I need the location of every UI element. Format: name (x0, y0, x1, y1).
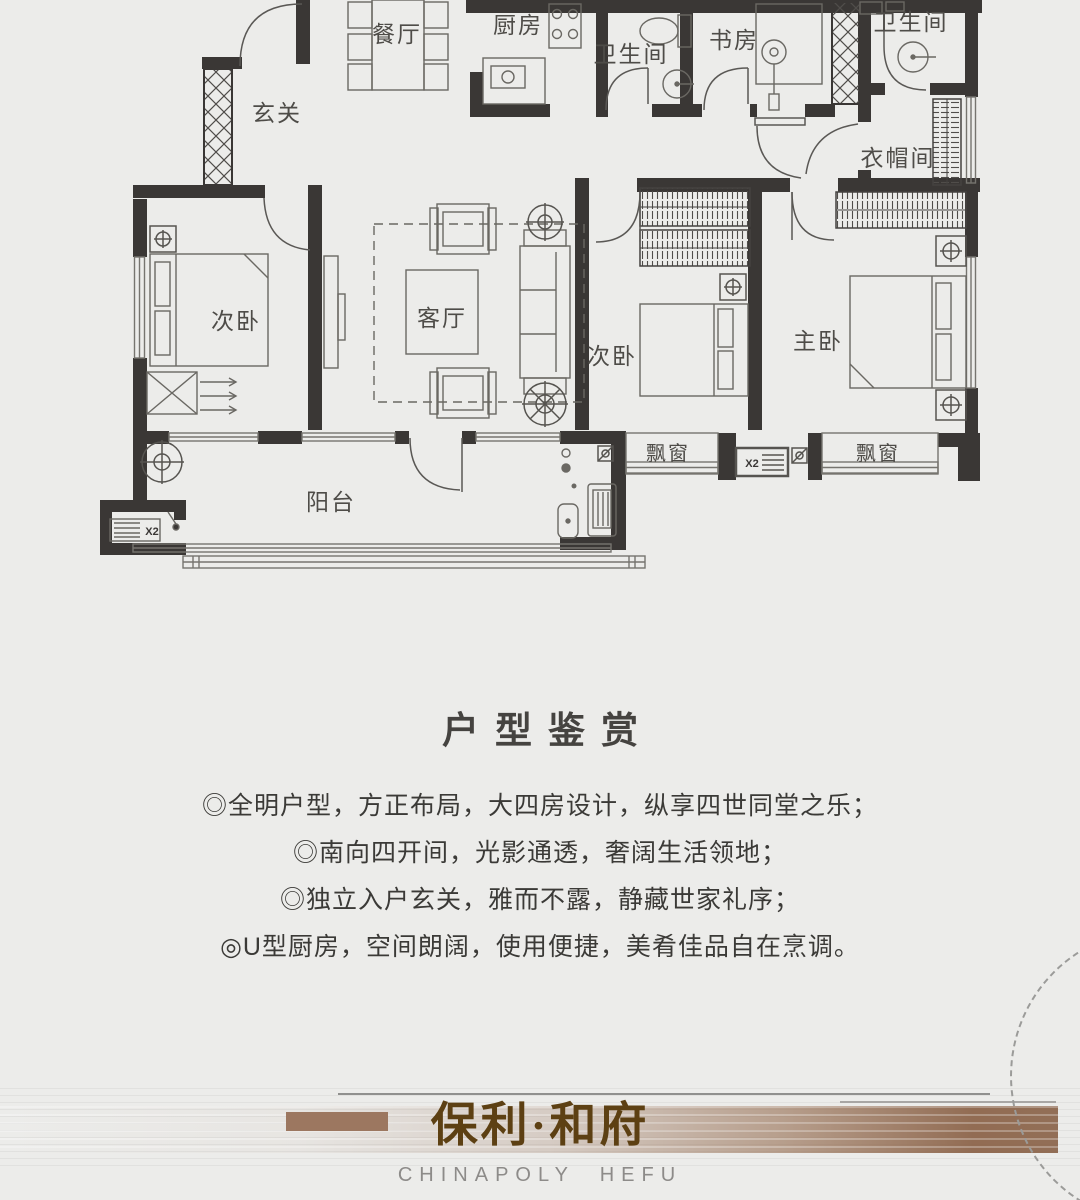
bed-middle-icon (640, 304, 748, 396)
room-label-bedroom-middle: 次卧 (587, 343, 637, 369)
room-label-cloakroom: 衣帽间 (861, 145, 936, 171)
meter-box-icon-4 (936, 390, 966, 420)
floorplan: 餐厅 厨房 卫生间 书房 卫生间 衣帽间 玄关 次卧 客厅 次卧 主卧 飘窗 飘… (0, 0, 1080, 600)
meter-box-icon (150, 226, 176, 252)
room-label-bath-right: 卫生间 (874, 9, 949, 35)
tv-console-icon (324, 256, 338, 368)
room-label-foyer: 玄关 (252, 100, 302, 126)
cloakroom-door-arc (806, 124, 858, 174)
study-door-arc (704, 68, 748, 110)
feature-bullet-4: ◎U型厨房，空间朗阔，使用便捷，美肴佳品自在烹调。 (0, 927, 1080, 963)
feature-bullet-3: ◎独立入户玄关，雅而不露，静藏世家礼序； (0, 880, 1080, 916)
room-label-living: 客厅 (417, 305, 467, 331)
bedroom-left-door-arc (264, 198, 310, 250)
bedroom-mid-door-arc (596, 192, 640, 242)
balcony-door-arc (410, 438, 460, 490)
bath-top-door-arc (606, 68, 648, 110)
vent-icon-2 (792, 448, 807, 463)
page: 餐厅 厨房 卫生间 书房 卫生间 衣帽间 玄关 次卧 客厅 次卧 主卧 飘窗 飘… (0, 0, 1080, 1200)
brand-subtitle: CHINAPOLY HEFU (0, 1164, 1080, 1187)
desk-icon (756, 4, 822, 110)
meter-box-icon-3 (936, 236, 966, 266)
foyer-column-hatch (204, 69, 232, 185)
heater-icon (147, 372, 236, 414)
meter-box-icon-2 (720, 274, 746, 300)
room-label-bay-left: 飘窗 (646, 442, 690, 465)
ceiling-fan-icon (522, 381, 568, 427)
sofa-icon (520, 246, 570, 378)
footer-divider-line (338, 1093, 990, 1095)
x2-middle-box (736, 448, 788, 476)
ceiling-lamp-icon (526, 203, 564, 241)
corridor-door-arc (757, 126, 801, 178)
cabinet-icon (558, 449, 616, 538)
bath-right-door-arc (884, 46, 926, 90)
room-label-dining: 餐厅 (372, 21, 422, 47)
room-label-master: 主卧 (793, 328, 843, 354)
room-label-bath-top: 卫生间 (594, 41, 669, 67)
section-title: 户型鉴赏 (0, 700, 1080, 754)
master-door-arc (792, 192, 834, 240)
x2-washer-label: X2 (145, 526, 158, 538)
brand-name: 保利·和府 (0, 1098, 1080, 1154)
vent-icon-1 (598, 446, 613, 461)
entry-door-arc (240, 4, 302, 66)
room-label-bedroom-left: 次卧 (211, 308, 261, 334)
master-bed-icon (850, 276, 966, 388)
study-wardrobe-hatch (832, 2, 860, 104)
room-label-bay-right: 飘窗 (856, 442, 900, 465)
room-label-balcony: 阳台 (306, 489, 356, 515)
room-label-study: 书房 (709, 27, 759, 53)
feature-bullet-2: ◎南向四开间，光影通透，奢阔生活领地； (0, 833, 1080, 869)
feature-bullet-1: ◎全明户型，方正布局，大四房设计，纵享四世同堂之乐； (0, 786, 1080, 822)
x2-middle-label: X2 (745, 458, 758, 470)
room-label-kitchen: 厨房 (493, 12, 543, 38)
